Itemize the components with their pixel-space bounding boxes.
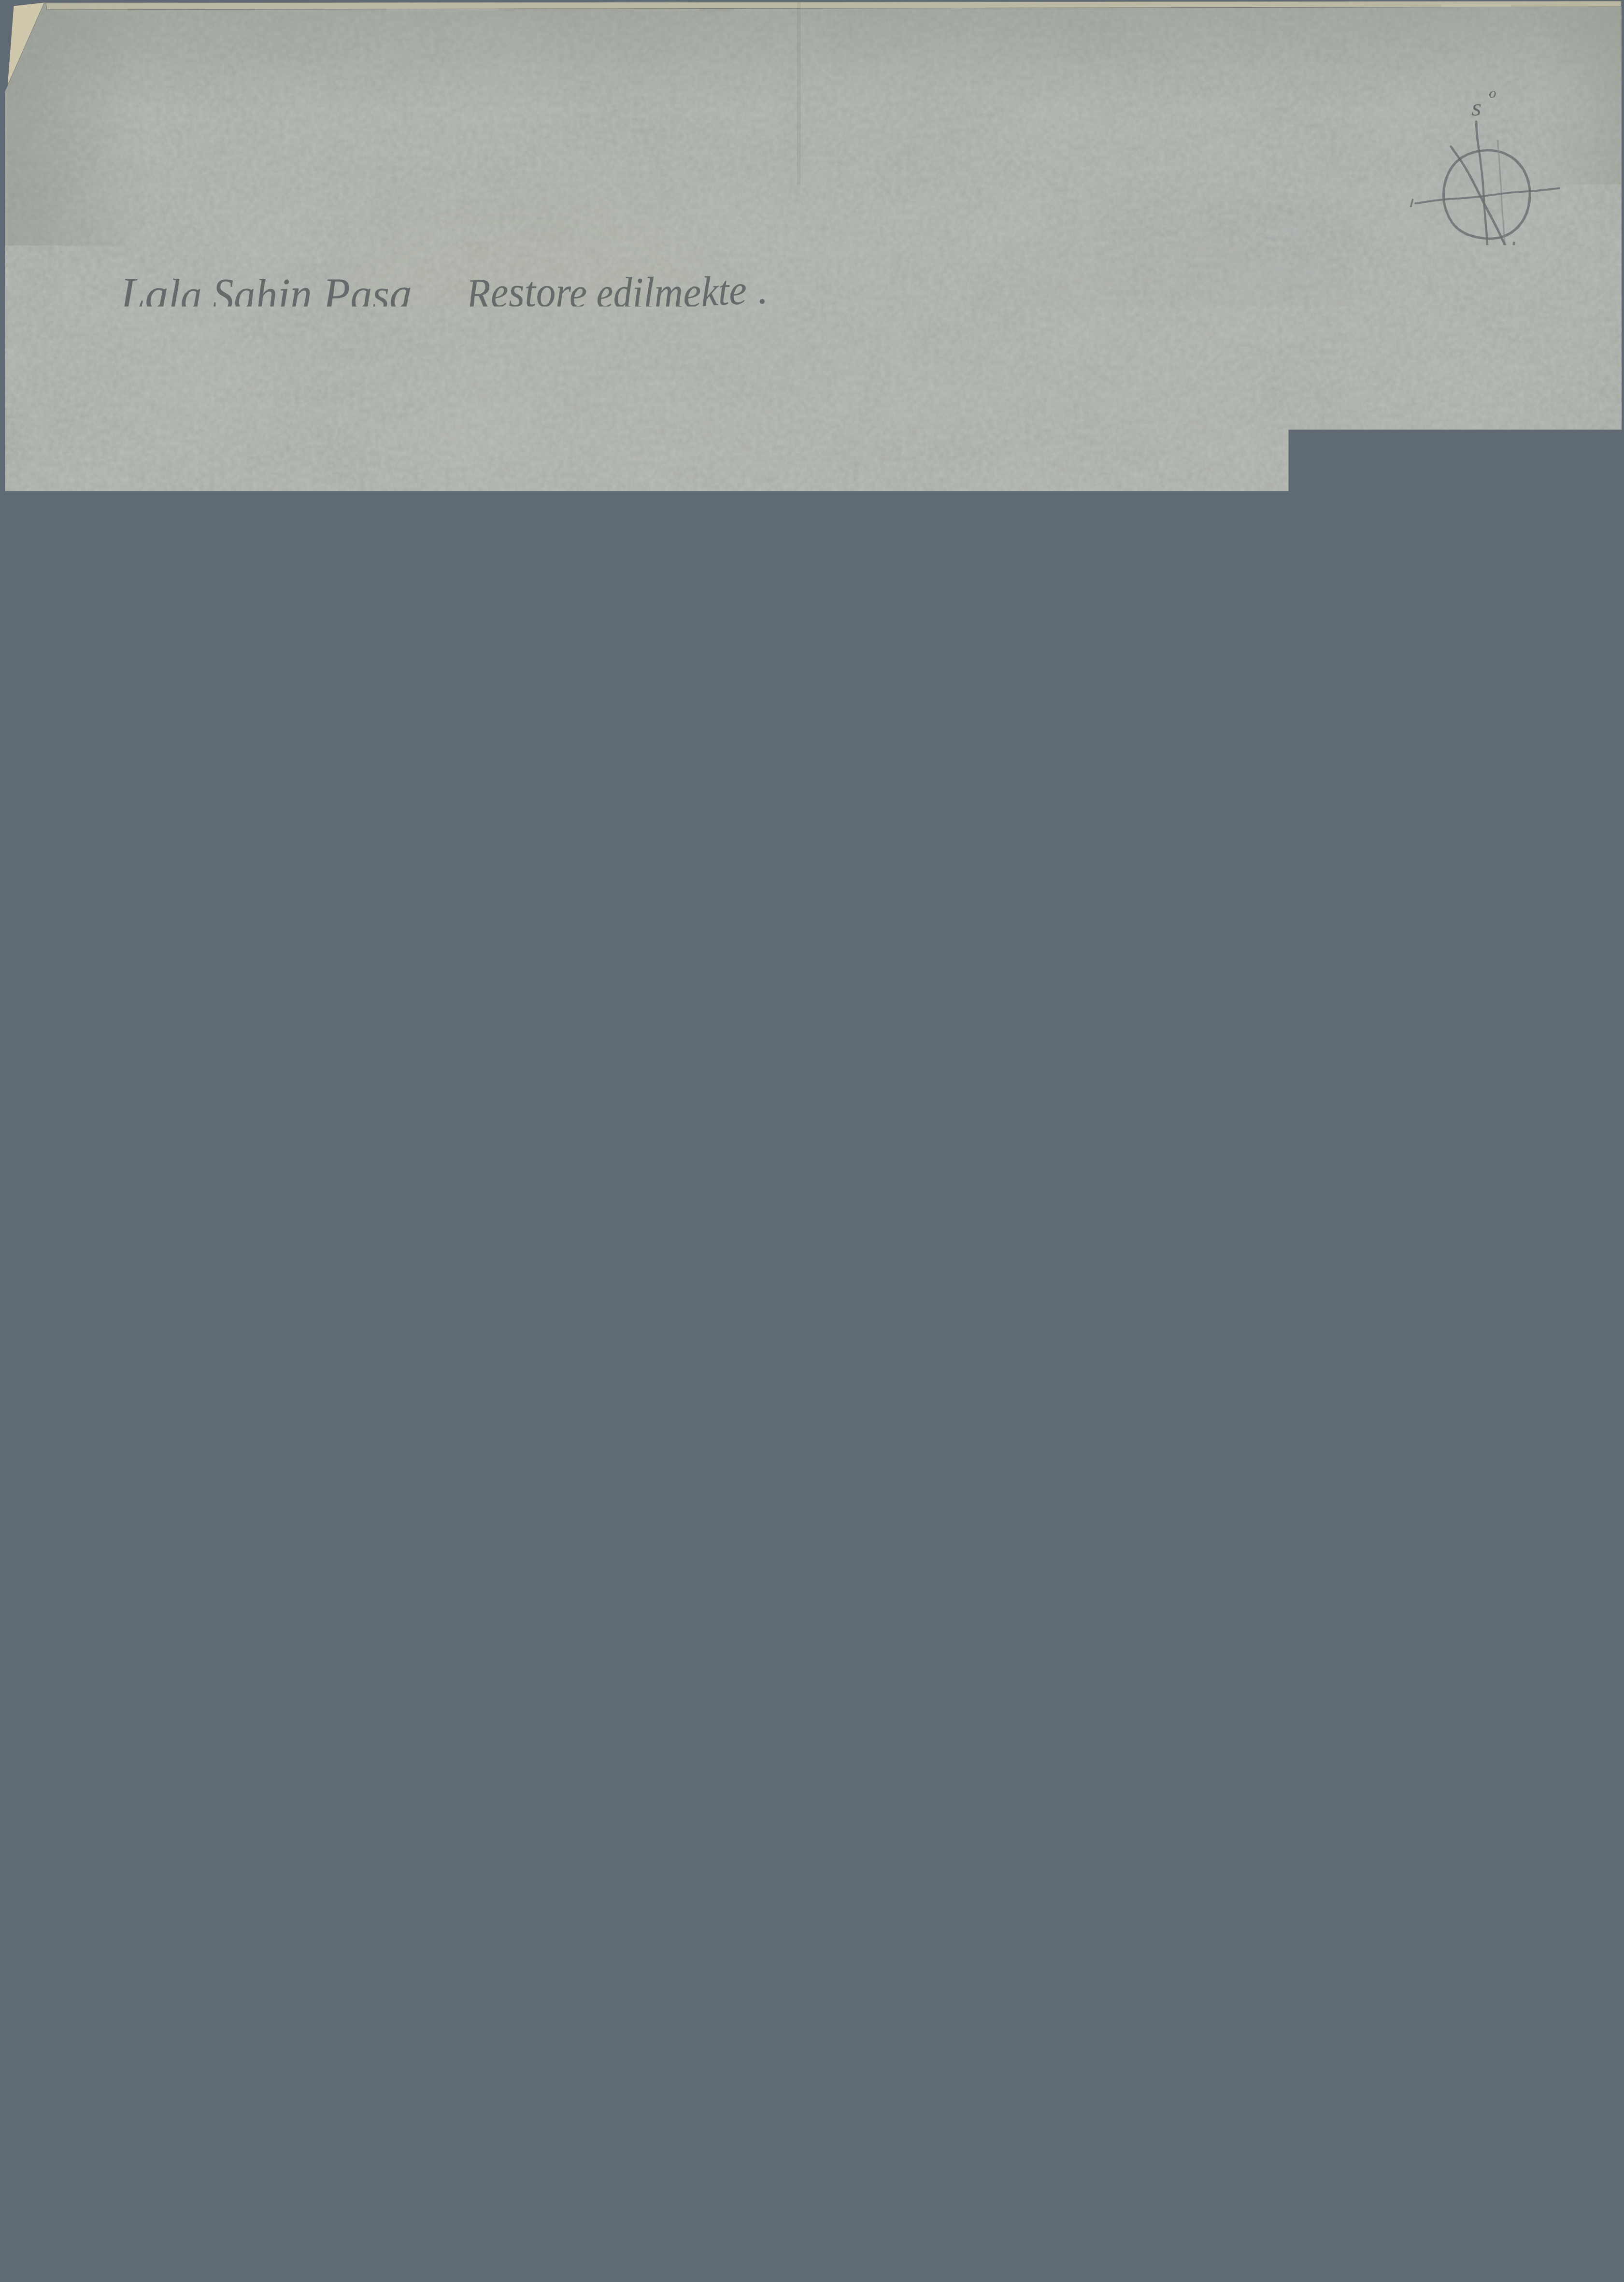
svg-text:Restore edilmekte .: Restore edilmekte .	[466, 266, 769, 319]
svg-text:14.4o: 14.4o	[822, 1798, 901, 1833]
svg-text:Diğer kolon gövde: Diğer kolon gövde	[62, 1536, 333, 1585]
svg-text:14.35: 14.35	[840, 349, 929, 389]
svg-text:üsttepesi.: üsttepesi.	[843, 575, 962, 604]
svg-text:.: .	[429, 272, 441, 324]
svg-text:duruyor.: duruyor.	[68, 1659, 213, 1708]
svg-text:7.95: 7.95	[837, 1837, 898, 1871]
svg-text:o: o	[1489, 85, 1496, 101]
svg-text:s: s	[1472, 93, 1482, 120]
svg-text:100: 100	[842, 411, 884, 439]
svg-text:645: 645	[1063, 1414, 1116, 1450]
svg-text:345.: 345.	[581, 654, 639, 687]
svg-text:1090: 1090	[897, 462, 982, 497]
svg-text:6.45: 6.45	[832, 1886, 894, 1921]
svg-text:kapı sövesi: kapı sövesi	[576, 1677, 730, 1711]
svg-text:boşluğu.: boşluğu.	[855, 670, 950, 699]
svg-text:340: 340	[754, 408, 802, 440]
svg-text:yarım daire: yarım daire	[59, 1789, 248, 1839]
svg-text:donoz yarım daire: donoz yarım daire	[700, 712, 990, 740]
svg-text:Kapı kemerleri de: Kapı kemerleri de	[62, 1728, 351, 1778]
svg-text:cephede yer yer işlemeli taşla: cephede yer yer işlemeli taşlar	[63, 1881, 532, 1930]
svg-text:kullanılmış.: kullanılmış.	[68, 1937, 228, 1986]
svg-text:14.40: 14.40	[848, 1519, 937, 1559]
svg-text:635: 635	[698, 1426, 751, 1462]
svg-text:parçaları bina önünde: parçaları bina önünde	[60, 1605, 415, 1654]
svg-text:altta mihrab: altta mihrab	[802, 633, 961, 662]
svg-text:160: 160	[874, 1417, 927, 1453]
svg-text:Lala Şahin Paşa: Lala Şahin Paşa	[120, 269, 411, 320]
